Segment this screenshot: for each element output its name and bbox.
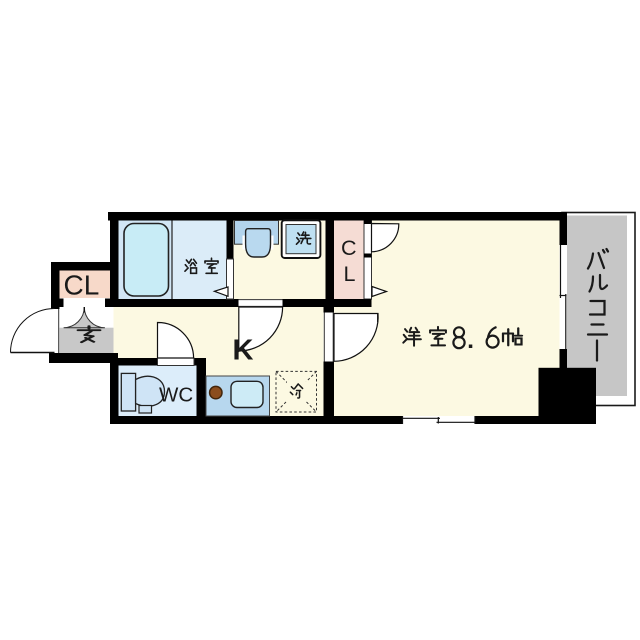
svg-text:L: L [344, 262, 356, 286]
svg-text:C: C [341, 236, 357, 260]
svg-text:CL: CL [64, 270, 100, 301]
svg-text:WC: WC [159, 384, 193, 407]
svg-text:K: K [233, 335, 254, 367]
